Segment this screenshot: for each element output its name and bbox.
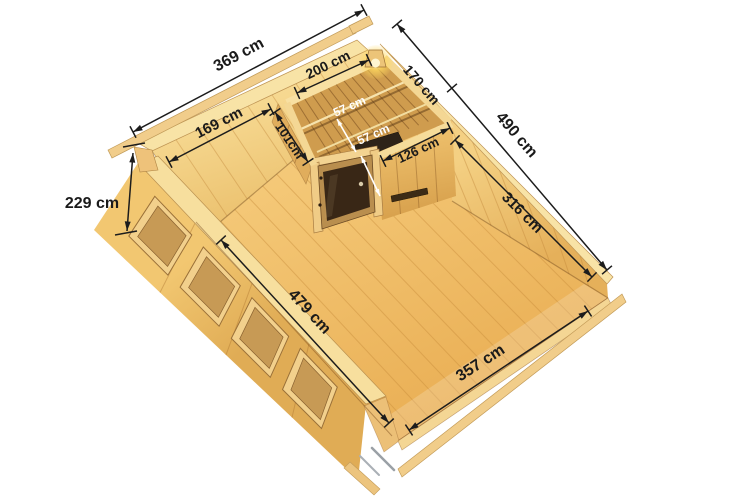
plank-tip [344,462,380,495]
sauna-house-floorplan: 369 cm 490 cm 229 cm 169 cm 200 cm 170 c… [0,0,750,500]
dimension-369-label: 369 cm [211,35,267,75]
corner-pin-1 [372,448,394,470]
door-hinge-bottom [318,203,321,206]
roof-beam-end [349,16,373,34]
dimension-490-label: 490 cm [492,109,540,161]
lamp-light [371,59,380,68]
door-handle [359,182,363,186]
dimension-229-label: 229 cm [65,195,119,212]
corner-pin-2 [360,456,379,475]
door-hinge-top [319,176,322,179]
floorplan-drawing: 369 cm 490 cm 229 cm 169 cm 200 cm 170 c… [0,0,750,500]
